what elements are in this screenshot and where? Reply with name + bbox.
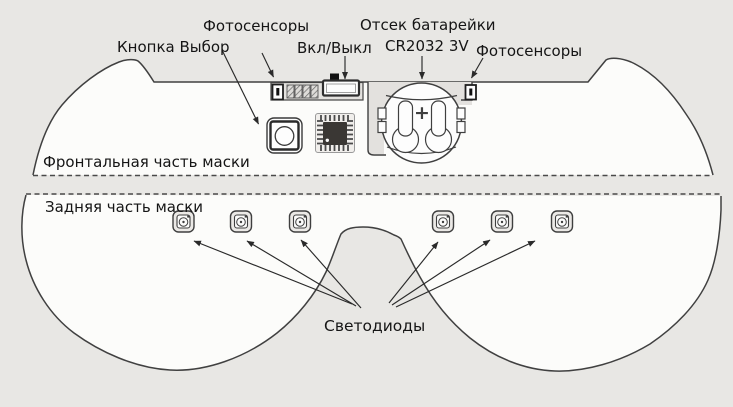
power-switch-body [323, 81, 359, 96]
diagram-svg: + Фотосенсоры Кнопка Вы [0, 0, 733, 407]
battery-polarity-mark: + [414, 102, 430, 124]
back-mask-shape [22, 195, 721, 371]
led-5 [492, 211, 513, 232]
chip-pin1-dot [326, 139, 329, 142]
battery-clip-right-2 [457, 122, 465, 133]
label-power-switch: Вкл/Выкл [297, 39, 372, 57]
chip-pins-bottom [321, 145, 348, 151]
power-switch [323, 74, 359, 96]
select-button [267, 118, 302, 153]
sensor-strip [271, 74, 363, 101]
battery-slot-left [399, 101, 413, 136]
led-3 [290, 211, 311, 232]
arrow-photosensors-right [472, 58, 484, 78]
arrow-photosensors-left [262, 53, 274, 77]
led-6 [552, 211, 573, 232]
label-battery-compartment: Отсек батарейки [360, 16, 496, 34]
battery-clip-left-1 [378, 108, 386, 119]
led-4 [433, 211, 454, 232]
back-mask-section [22, 194, 721, 371]
label-battery-type: CR2032 3V [385, 37, 469, 55]
label-photosensors-left: Фотосенсоры [203, 17, 309, 35]
label-leds: Светодиоды [324, 317, 425, 335]
led-2 [231, 211, 252, 232]
photosensor-right [466, 85, 477, 100]
battery-slot-right [432, 101, 446, 136]
label-select-button: Кнопка Выбор [117, 38, 230, 56]
battery-clip-left-2 [378, 122, 386, 133]
label-back-part: Задняя часть маски [45, 198, 203, 216]
mask-diagram: + Фотосенсоры Кнопка Вы [0, 0, 733, 407]
label-photosensors-right: Фотосенсоры [476, 42, 582, 60]
battery-clip-right-1 [457, 108, 465, 119]
photosensor-left [273, 85, 284, 100]
chip [316, 114, 355, 153]
chip-pins-top [321, 115, 348, 121]
label-front-part: Фронтальная часть маски [43, 153, 250, 171]
